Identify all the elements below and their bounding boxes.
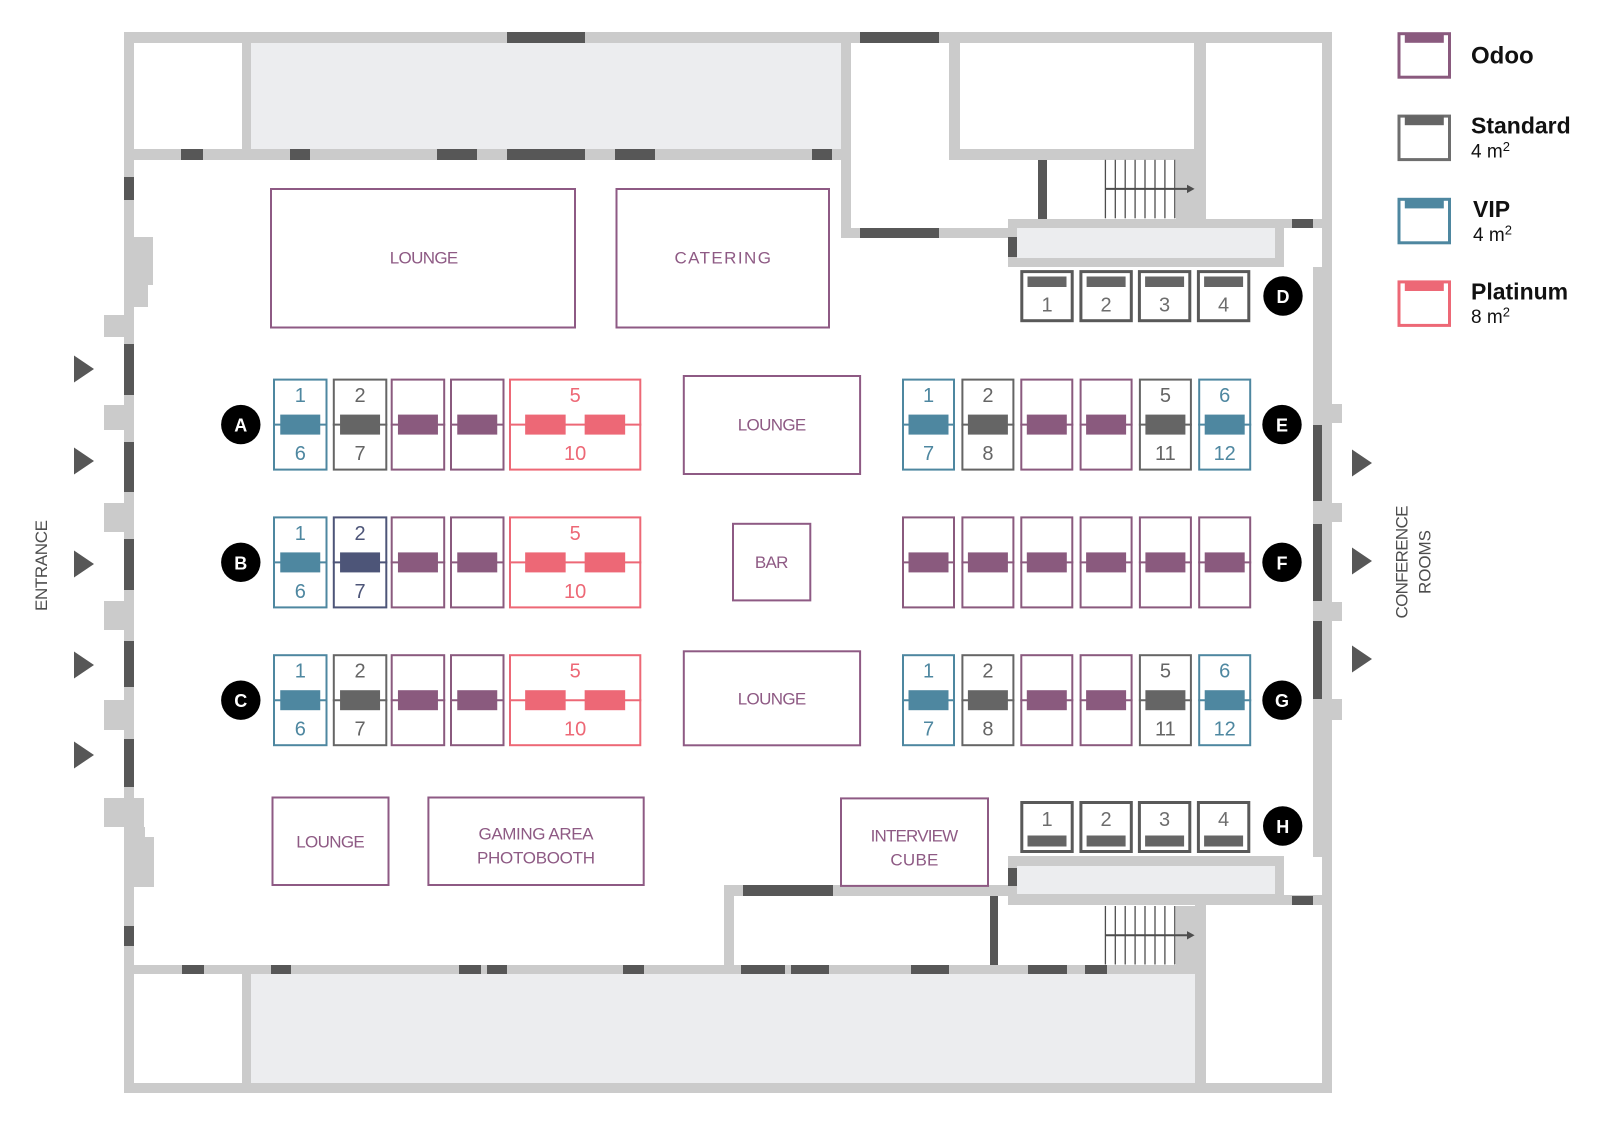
svg-text:LOUNGE: LOUNGE: [738, 690, 807, 709]
svg-text:11: 11: [1155, 719, 1176, 741]
svg-text:LOUNGE: LOUNGE: [738, 416, 807, 435]
svg-text:1: 1: [295, 523, 306, 545]
svg-text:2: 2: [982, 661, 993, 683]
svg-text:4: 4: [1218, 295, 1229, 317]
svg-text:E: E: [1276, 416, 1288, 436]
svg-text:11: 11: [1155, 443, 1176, 465]
svg-text:7: 7: [354, 443, 365, 465]
svg-text:2: 2: [982, 385, 993, 407]
svg-text:1: 1: [1041, 295, 1052, 317]
svg-text:6: 6: [295, 581, 306, 603]
svg-text:2: 2: [354, 523, 365, 545]
svg-text:G: G: [1275, 691, 1289, 711]
svg-text:12: 12: [1214, 719, 1236, 741]
svg-text:5: 5: [570, 661, 581, 683]
svg-text:GAMING AREA: GAMING AREA: [479, 825, 595, 844]
svg-text:A: A: [234, 416, 247, 436]
svg-text:3: 3: [1159, 809, 1170, 831]
svg-text:5: 5: [1160, 385, 1171, 407]
svg-text:8: 8: [982, 443, 993, 465]
svg-text:1: 1: [923, 385, 934, 407]
svg-text:2: 2: [1101, 295, 1112, 317]
svg-text:12: 12: [1214, 443, 1236, 465]
svg-text:8: 8: [982, 719, 993, 741]
svg-text:6: 6: [1219, 661, 1230, 683]
svg-text:4: 4: [1218, 809, 1229, 831]
svg-text:CONFERENCE: CONFERENCE: [1392, 506, 1411, 619]
svg-text:5: 5: [570, 385, 581, 407]
svg-text:1: 1: [923, 661, 934, 683]
svg-text:10: 10: [564, 443, 586, 465]
svg-text:LOUNGE: LOUNGE: [296, 833, 365, 852]
svg-text:BAR: BAR: [755, 553, 789, 572]
svg-text:6: 6: [295, 443, 306, 465]
svg-text:ROOMS: ROOMS: [1416, 530, 1435, 594]
svg-text:7: 7: [923, 443, 934, 465]
svg-text:C: C: [234, 691, 247, 711]
svg-text:2: 2: [354, 385, 365, 407]
svg-text:5: 5: [570, 523, 581, 545]
svg-text:F: F: [1277, 553, 1288, 573]
svg-text:10: 10: [564, 719, 586, 741]
svg-text:ENTRANCE: ENTRANCE: [32, 520, 51, 611]
svg-text:3: 3: [1159, 295, 1170, 317]
svg-text:7: 7: [923, 719, 934, 741]
svg-text:7: 7: [354, 581, 365, 603]
svg-text:VIP: VIP: [1473, 196, 1510, 222]
svg-text:7: 7: [354, 719, 365, 741]
svg-text:INTERVIEW: INTERVIEW: [871, 827, 959, 846]
svg-text:2: 2: [1101, 809, 1112, 831]
svg-text:H: H: [1276, 817, 1289, 837]
svg-text:2: 2: [354, 661, 365, 683]
svg-text:1: 1: [1041, 809, 1052, 831]
svg-text:10: 10: [564, 581, 586, 603]
svg-text:6: 6: [295, 719, 306, 741]
svg-text:LOUNGE: LOUNGE: [390, 249, 459, 268]
svg-text:5: 5: [1160, 661, 1171, 683]
svg-text:Platinum: Platinum: [1471, 279, 1568, 305]
svg-text:1: 1: [295, 385, 306, 407]
svg-text:Odoo: Odoo: [1471, 43, 1534, 70]
svg-text:1: 1: [295, 661, 306, 683]
svg-text:D: D: [1277, 287, 1290, 307]
svg-text:6: 6: [1219, 385, 1230, 407]
svg-text:B: B: [234, 553, 247, 573]
svg-text:PHOTOBOOTH: PHOTOBOOTH: [477, 849, 595, 868]
svg-text:Standard: Standard: [1471, 113, 1571, 139]
svg-text:CUBE: CUBE: [890, 851, 938, 870]
